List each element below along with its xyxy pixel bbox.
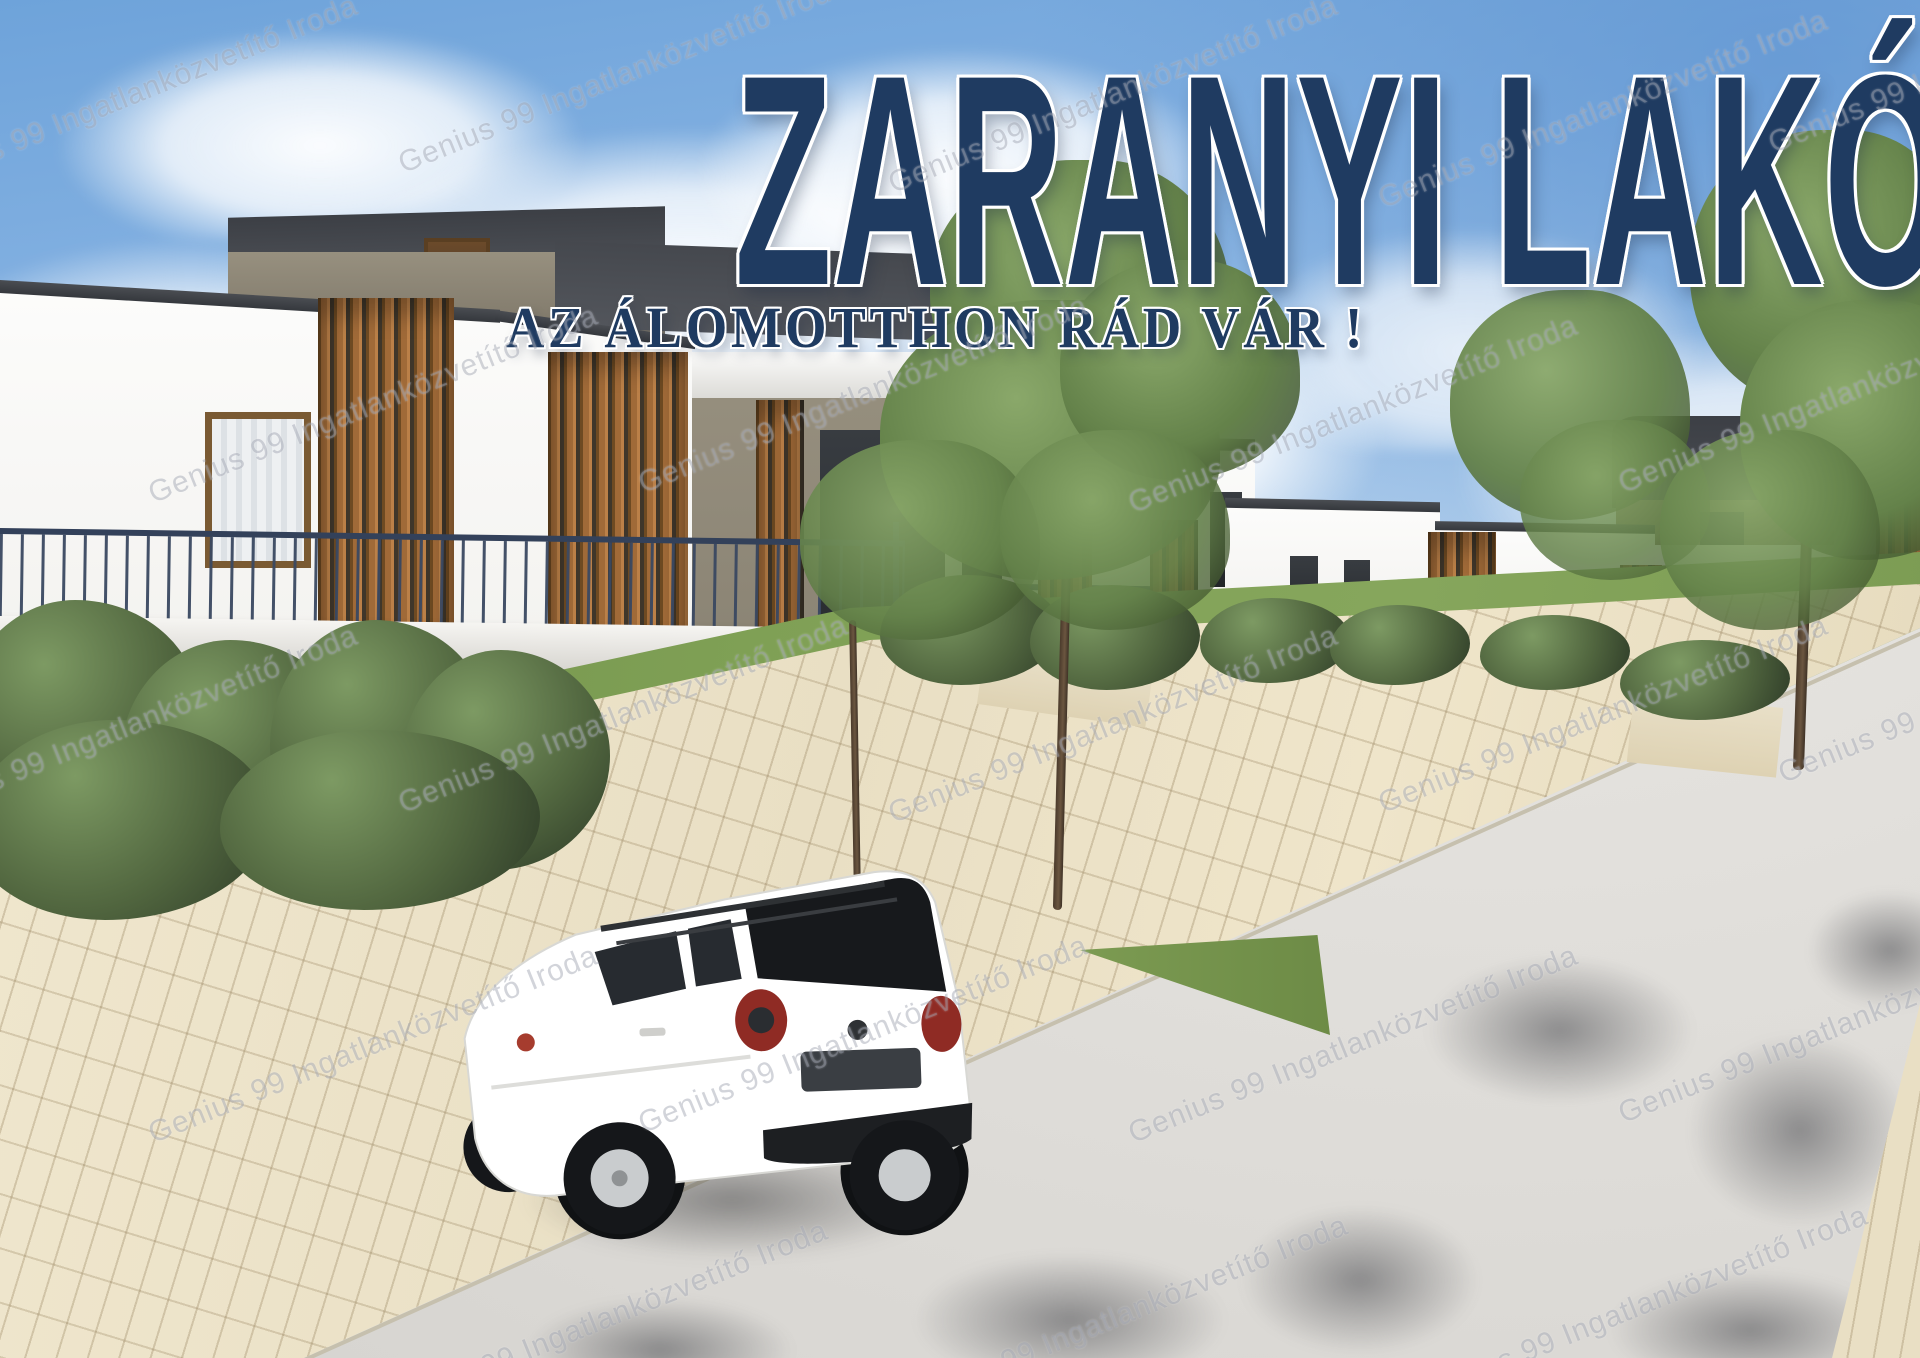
hedge-bush (1200, 598, 1350, 683)
tree-foliage (1660, 430, 1880, 630)
white-suv-car (423, 820, 998, 1269)
hedge-bush (1330, 605, 1470, 685)
poster-title: ZARANYI LAKÓPARK (735, 30, 1920, 330)
hedge-bush (1480, 615, 1630, 690)
door-handle (639, 1028, 665, 1037)
poster-subtitle: AZ ÁLOMOTTHON RÁD VÁR ! (53, 299, 1819, 357)
license-plate-recess (800, 1048, 921, 1092)
poster-image: ZARANYI LAKÓPARK AZ ÁLOMOTTHON RÁD VÁR !… (0, 0, 1920, 1358)
hedge-bush (1620, 640, 1790, 720)
poster-title-wrap: ZARANYI LAKÓPARK (0, 30, 1920, 330)
tree-foliage (1000, 430, 1230, 630)
